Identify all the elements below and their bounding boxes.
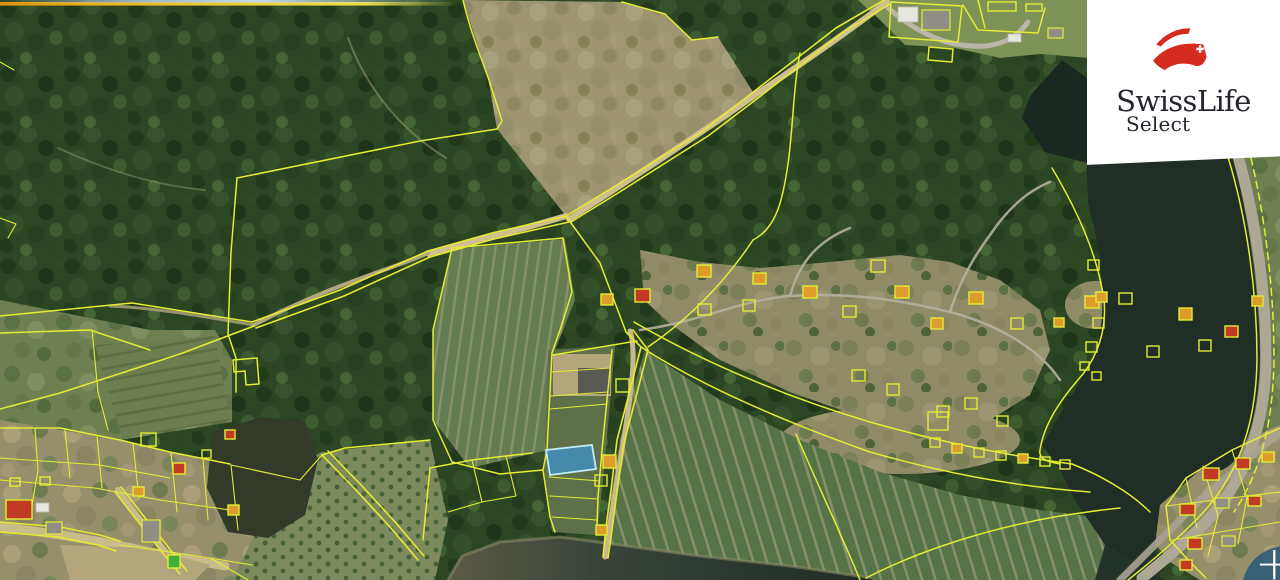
brand-watermark-card: SwissLife Select (1087, 0, 1280, 170)
brand-sub-wordmark: Select (1126, 112, 1190, 136)
aerial-map-viewport: SwissLife Select + (0, 0, 1280, 580)
highlight-layer (546, 445, 596, 475)
highlighted-parcel[interactable] (546, 445, 596, 475)
swiss-life-flag-icon (1151, 24, 1215, 80)
plus-icon: + (1255, 540, 1280, 580)
